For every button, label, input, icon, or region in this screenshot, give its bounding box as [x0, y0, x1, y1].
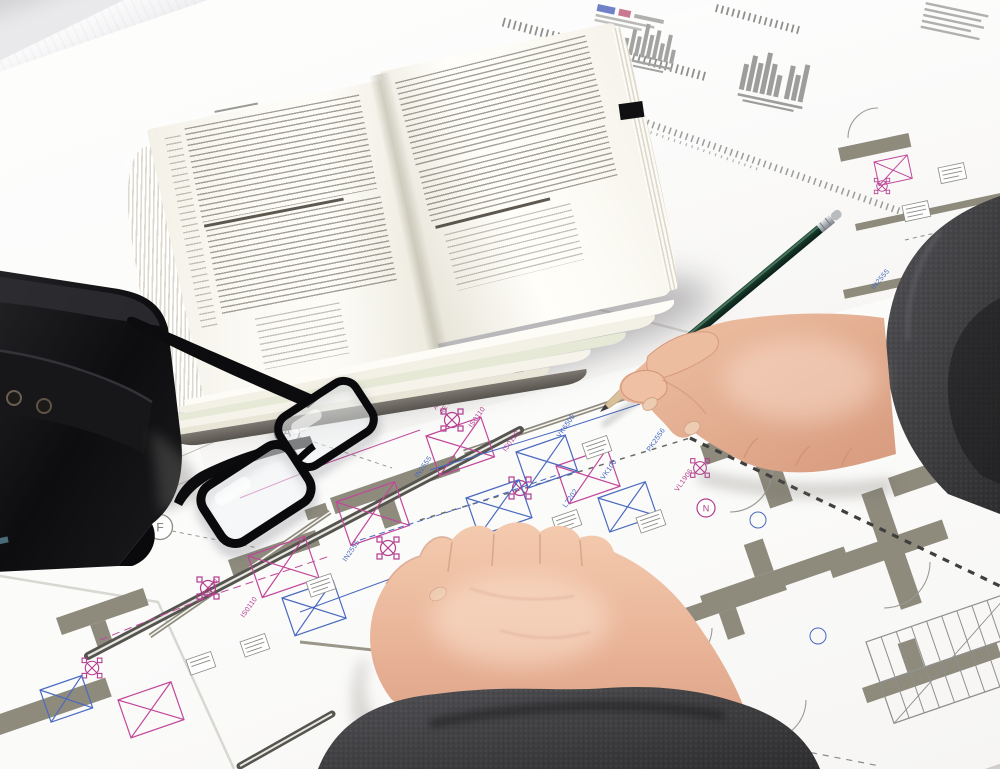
foreground-objects [0, 0, 1000, 769]
right-sleeve [886, 196, 1000, 514]
right-hand [619, 314, 896, 498]
snap-button-1 [7, 391, 21, 405]
snap-button-2 [37, 399, 51, 413]
hand-highlight [430, 574, 610, 666]
leather-organizer [0, 270, 204, 572]
right-hand-shadow [698, 470, 896, 497]
right-hand-highlight [722, 338, 878, 422]
photo-architect-desk: A F [0, 0, 1000, 769]
